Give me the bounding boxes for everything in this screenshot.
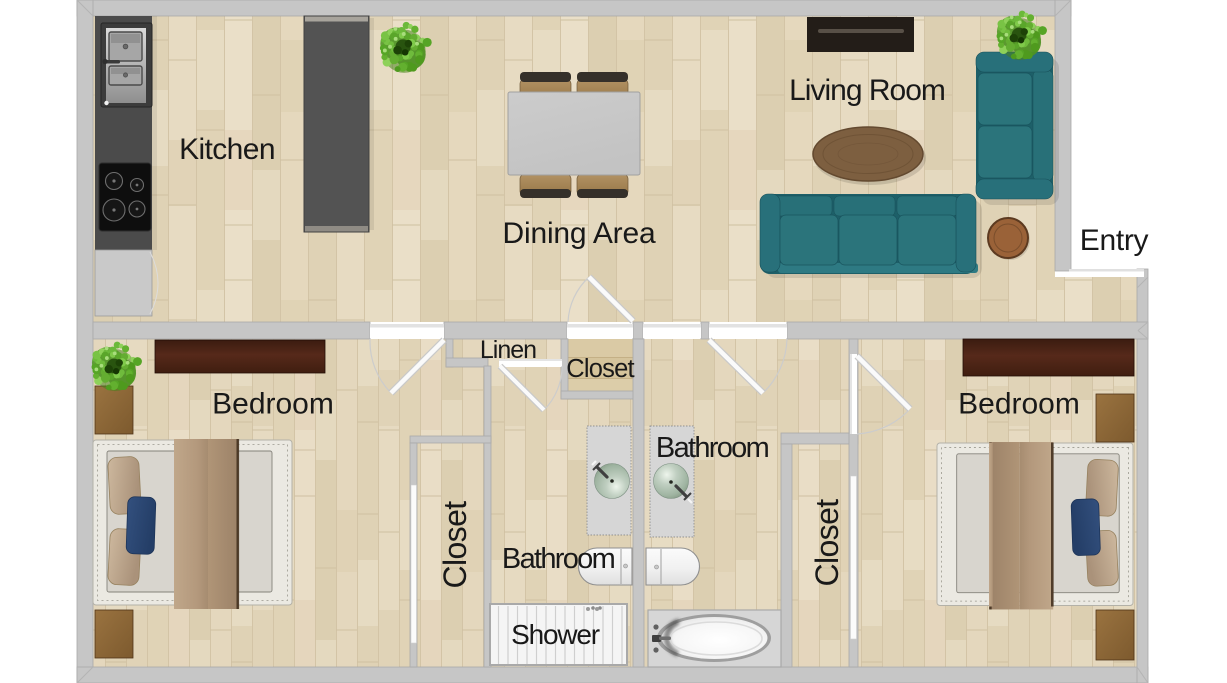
svg-text:Bathroom: Bathroom: [656, 432, 769, 464]
svg-text:Entry: Entry: [1080, 224, 1149, 257]
svg-text:Bedroom: Bedroom: [958, 388, 1080, 421]
svg-text:Bathroom: Bathroom: [502, 543, 615, 575]
svg-text:Shower: Shower: [511, 619, 600, 650]
svg-text:Linen: Linen: [480, 336, 536, 364]
svg-text:Closet: Closet: [437, 501, 473, 589]
svg-text:Closet: Closet: [809, 499, 845, 587]
svg-text:Dining Area: Dining Area: [503, 217, 656, 250]
svg-text:Bedroom: Bedroom: [212, 388, 334, 421]
svg-text:Kitchen: Kitchen: [179, 133, 275, 166]
svg-text:Closet: Closet: [566, 355, 634, 383]
svg-text:Living Room: Living Room: [789, 74, 945, 107]
